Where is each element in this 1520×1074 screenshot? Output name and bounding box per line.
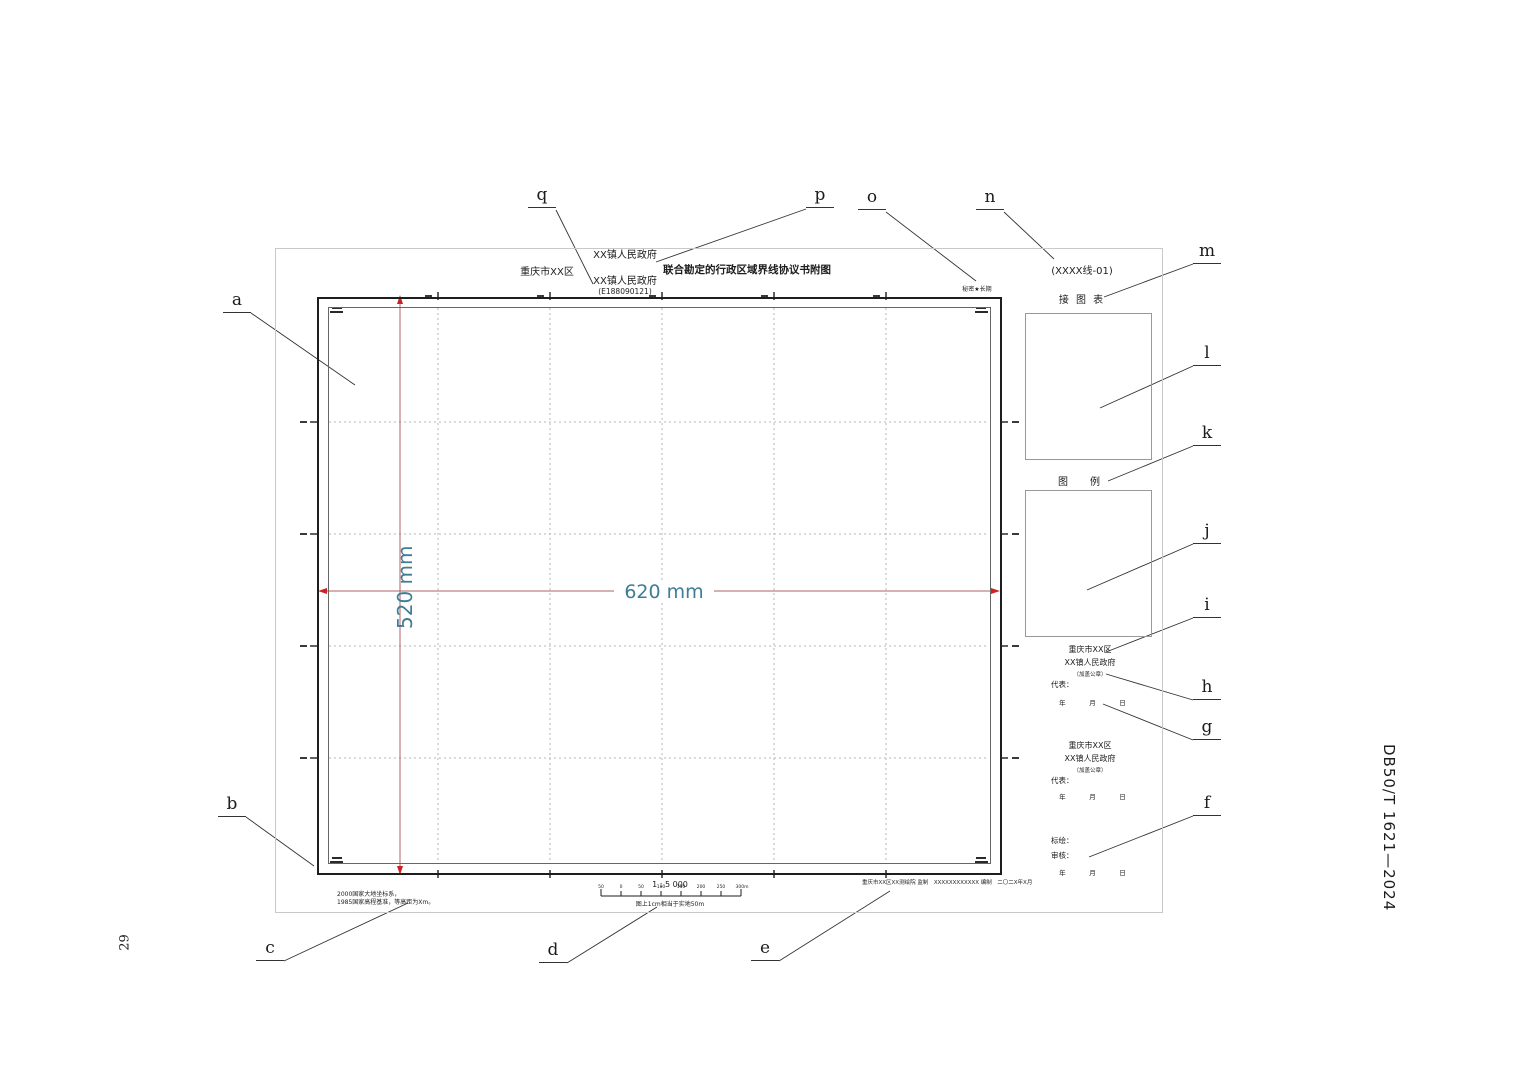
page-number: 29 (118, 928, 133, 958)
width-dimension-label: 620 mm (614, 581, 714, 601)
drafting-plot-label: 标绘： (1051, 835, 1074, 846)
callout-h: h (1193, 677, 1221, 700)
sig1-rep-label: 代表： (1051, 679, 1074, 690)
callout-n: n (976, 187, 1004, 210)
sig1-seal-note: （加盖公章） (1040, 670, 1140, 678)
sig2-rep-label: 代表： (1051, 775, 1074, 786)
figure-page: 50 0 50 100 150 200 250 300m (0, 0, 1520, 1074)
legend-label: 图 例 (1032, 473, 1132, 488)
callout-f: f (1193, 793, 1221, 816)
callout-e: e (751, 938, 779, 961)
legend-box (1025, 490, 1152, 637)
header-region-label: 重庆市XX区 (505, 263, 589, 278)
callout-i: i (1193, 595, 1221, 618)
callout-d-leader (567, 907, 657, 963)
callout-m: m (1193, 241, 1221, 264)
sig1-region: 重庆市XX区 (1040, 644, 1140, 655)
figure-title: 联合勘定的行政区域界线协议书附图 (663, 262, 831, 277)
callout-b: b (218, 794, 246, 817)
callout-o: o (858, 187, 886, 210)
height-dimension-label: 520 mm (393, 549, 415, 629)
boundary-line-code: (XXXX线-01) (1032, 262, 1132, 277)
callout-p: p (806, 185, 834, 208)
sig1-gov: XX镇人民政府 (1040, 657, 1140, 668)
scale-caption: 图上1cm相当于实地50m (605, 899, 735, 908)
header-gov-bottom-label: XX镇人民政府 (580, 272, 670, 287)
drafting-date: 年 月 日 (1040, 867, 1150, 877)
header-gov-top-label: XX镇人民政府 (580, 246, 670, 261)
security-mark: 秘密★长期 (954, 284, 1000, 293)
callout-d: d (539, 940, 567, 963)
index-map-box (1025, 313, 1152, 460)
scale-text: 1 : 5 000 (625, 880, 715, 889)
header-sheet-code: (E188090121) (580, 287, 670, 296)
sig2-date: 年 月 日 (1040, 791, 1150, 801)
sig2-seal-note: （加盖公章） (1040, 766, 1140, 774)
sig2-region: 重庆市XX区 (1040, 740, 1140, 751)
callout-j: j (1193, 521, 1221, 544)
sig2-gov: XX镇人民政府 (1040, 753, 1140, 764)
callout-c: c (256, 938, 284, 961)
standard-code: DB50/T 1621—2024 (1380, 744, 1398, 911)
drafting-check-label: 审核： (1051, 850, 1074, 861)
index-map-label: 接 图 表 (1032, 291, 1132, 306)
callout-k: k (1193, 423, 1221, 446)
sig1-date: 年 月 日 (1040, 697, 1150, 707)
callout-l: l (1193, 343, 1221, 366)
datum-note-line2: 1985国家高程基准，等高距为Xm。 (337, 897, 434, 906)
credit-line: 重庆市XX区XX测绘院 监制 XXXXXXXXXXXX 编制 二〇二X年X月 (862, 878, 1032, 886)
callout-q: q (528, 185, 556, 208)
callout-g: g (1193, 717, 1221, 740)
callout-a: a (223, 290, 251, 313)
